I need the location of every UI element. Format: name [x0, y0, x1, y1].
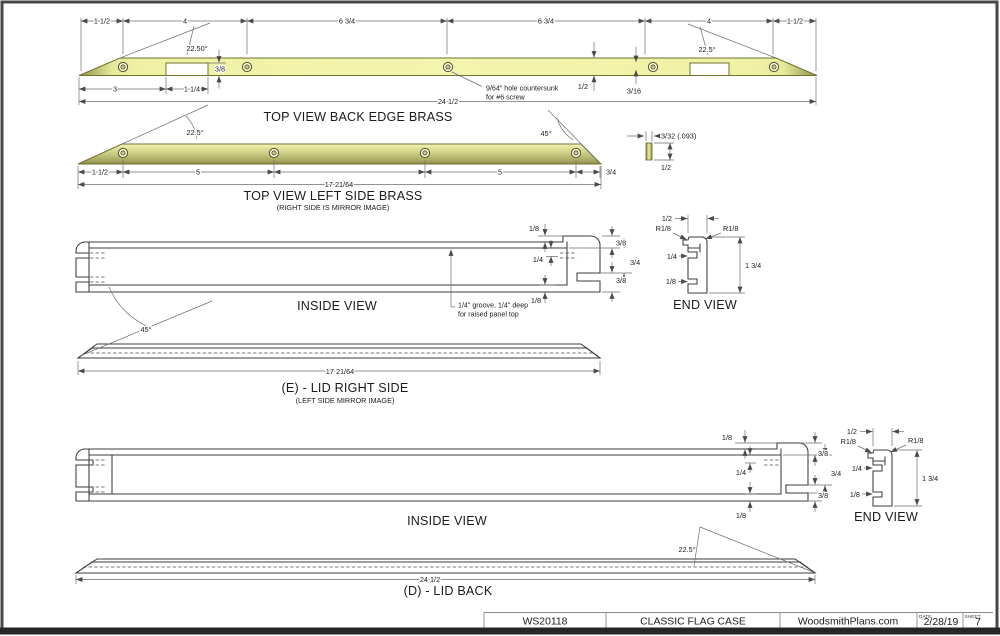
- dim-label: 3/8: [818, 491, 828, 500]
- title-block: WS20118 CLASSIC FLAG CASE WoodsmithPlans…: [484, 613, 993, 629]
- dim-label: 1/8: [531, 296, 541, 305]
- dim-label: 1 3/4: [745, 261, 761, 270]
- part-title: (D) - LID BACK: [404, 584, 493, 598]
- dim-label: 3: [113, 85, 117, 94]
- view-title: END VIEW: [854, 510, 918, 524]
- dim-label: 1/8: [722, 433, 732, 442]
- dim-label: 1/2: [578, 82, 588, 91]
- dim-label: 4: [707, 17, 711, 26]
- lid-back-lines: [76, 562, 815, 573]
- radius-leader: [858, 446, 872, 453]
- drawing-page: 1 1/2 4 6 3/4 6 3/4 4 1 1/2 22.50° 22.5°…: [0, 0, 1000, 636]
- lid-back-outline: [76, 559, 815, 573]
- dim-label: 1 3/4: [922, 474, 938, 483]
- part-subtitle: (LEFT SIDE MIRROR IMAGE): [296, 396, 395, 405]
- dim-label: 24 1/2: [438, 97, 458, 106]
- dim-label: 1/8: [666, 277, 676, 286]
- dim-label: 3/4: [606, 168, 616, 177]
- radius-leader: [706, 233, 722, 239]
- dim-label: 1/8: [529, 224, 539, 233]
- dim-label: 3/8: [215, 65, 225, 74]
- angle-label: 45°: [140, 325, 151, 334]
- board-profile: [76, 236, 600, 292]
- angle-leader-left: [122, 105, 208, 144]
- view-top-back-edge-brass: 1 1/2 4 6 3/4 6 3/4 4 1 1/2 22.50° 22.5°…: [79, 17, 817, 125]
- border-bottom-bar: [0, 628, 1000, 635]
- view-end-lid-back: 1/2 R1/8 R1/8 1/4 1/8 1 3/4 END VIEW: [841, 427, 939, 524]
- dim-label: 1/8: [850, 490, 860, 499]
- dim-label: 6 3/4: [538, 17, 554, 26]
- screw-hole: [269, 148, 278, 157]
- screw-hole: [118, 148, 127, 157]
- groove-note: 1/4" groove, 1/4" deep: [458, 302, 528, 310]
- board-profile: [76, 443, 808, 501]
- groove-note: for raised panel top: [458, 311, 519, 319]
- dim-label: 3/4: [630, 258, 640, 267]
- radius-leader: [891, 445, 907, 452]
- dim-label: 1 1/2: [94, 17, 110, 26]
- dim-label: 3/8: [616, 276, 626, 285]
- dim-label: 3/8: [616, 239, 626, 248]
- end-profile-inner: [873, 457, 885, 465]
- end-profile-inner: [688, 244, 700, 252]
- detail-brass-strip-section: 3/32 (.093) 1/2: [627, 131, 696, 172]
- brass-bar-left-side: [78, 144, 601, 164]
- view-title: INSIDE VIEW: [407, 514, 487, 528]
- hidden-lines: [90, 253, 577, 282]
- dim-label: 1 1/2: [787, 17, 803, 26]
- hole-note: for #6 screw: [486, 94, 526, 102]
- dim-label: 1/4: [533, 255, 543, 264]
- dim-label: 6 3/4: [339, 17, 355, 26]
- view-title: INSIDE VIEW: [297, 299, 377, 313]
- part-title: (E) - LID RIGHT SIDE: [282, 381, 409, 395]
- view-end-lid-side: 1/2 R1/8 R1/8 1/4 1/8 1 3/4 END VIEW: [656, 214, 762, 312]
- plan-title: CLASSIC FLAG CASE: [640, 617, 746, 628]
- view-lid-back-edge: 22.5° 24 1/2 (D) - LID BACK: [76, 527, 815, 598]
- dim-label: 17 21/64: [325, 180, 353, 189]
- plan-code: WS20118: [523, 617, 568, 628]
- screw-hole: [571, 148, 580, 157]
- angle-label: 45°: [540, 129, 551, 138]
- screw-hole: [648, 62, 657, 71]
- dim-label: 1 1/4: [184, 85, 200, 94]
- end-profile: [683, 237, 707, 293]
- angle-leader: [80, 287, 212, 356]
- radius-label: R1/8: [723, 224, 738, 233]
- dim-label: 1 1/2: [92, 168, 108, 177]
- dim-label: 1/2: [661, 163, 671, 172]
- dim-label: 5: [196, 168, 200, 177]
- radius-label: R1/8: [656, 224, 671, 233]
- brass-notch-right: [690, 63, 729, 75]
- screw-hole: [420, 148, 429, 157]
- view-title: TOP VIEW LEFT SIDE BRASS: [243, 189, 422, 203]
- dim-label: 1/4: [852, 464, 862, 473]
- end-profile: [868, 450, 892, 506]
- angle-leader: [694, 527, 813, 572]
- view-title: END VIEW: [673, 298, 737, 312]
- dim-label: 3/4: [831, 469, 841, 478]
- radius-label: R1/8: [841, 437, 856, 446]
- view-title: TOP VIEW BACK EDGE BRASS: [263, 110, 452, 124]
- dim-label: 3/16: [627, 87, 641, 96]
- dim-label: 5: [498, 168, 502, 177]
- view-inside-lid-back: 1/8 3/8 1/4 3/4 3/8 1/8 INSIDE VIEW: [76, 430, 841, 528]
- sheet-number: 7: [975, 617, 981, 628]
- brass-strip: [646, 143, 652, 160]
- screw-hole: [242, 62, 251, 71]
- screw-hole: [118, 62, 127, 71]
- dim-label: 3/32 (.093): [661, 132, 696, 141]
- technical-drawing: 1 1/2 4 6 3/4 6 3/4 4 1 1/2 22.50° 22.5°…: [0, 0, 1000, 636]
- angle-label: 22.50°: [186, 44, 207, 53]
- view-inside-lid-side: 1/8 3/8 1/4 3/4 3/8 1/8 1/4" groove, 1/4…: [76, 224, 640, 319]
- date-value: 2/28/19: [924, 617, 959, 628]
- dim-label: 24 1/2: [420, 575, 440, 584]
- site-name: WoodsmithPlans.com: [798, 617, 898, 628]
- view-subtitle: (RIGHT SIDE IS MIRROR IMAGE): [277, 203, 390, 212]
- radius-label: R1/8: [908, 436, 923, 445]
- hidden-lines: [90, 460, 781, 492]
- screw-hole: [769, 62, 778, 71]
- angle-label: 22.5°: [186, 128, 203, 137]
- dim-label: 4: [183, 17, 187, 26]
- angle-label: 22.5°: [678, 545, 695, 554]
- dim-label: 17 21/64: [326, 367, 354, 376]
- lid-side-outline: [78, 344, 600, 358]
- screw-hole: [443, 62, 452, 71]
- hole-note: 9/64" hole countersunk: [486, 85, 559, 93]
- dim-label: 3/8: [818, 449, 828, 458]
- dim-label: 1/4: [667, 252, 677, 261]
- dim-label: 1/8: [736, 511, 746, 520]
- angle-label: 22.5°: [698, 45, 715, 54]
- radius-leader: [673, 233, 687, 240]
- dim-label: 1/4: [736, 468, 746, 477]
- dim-label: 1/2: [662, 214, 672, 223]
- dim-label: 1/2: [847, 427, 857, 436]
- brass-notch-left: [166, 63, 208, 75]
